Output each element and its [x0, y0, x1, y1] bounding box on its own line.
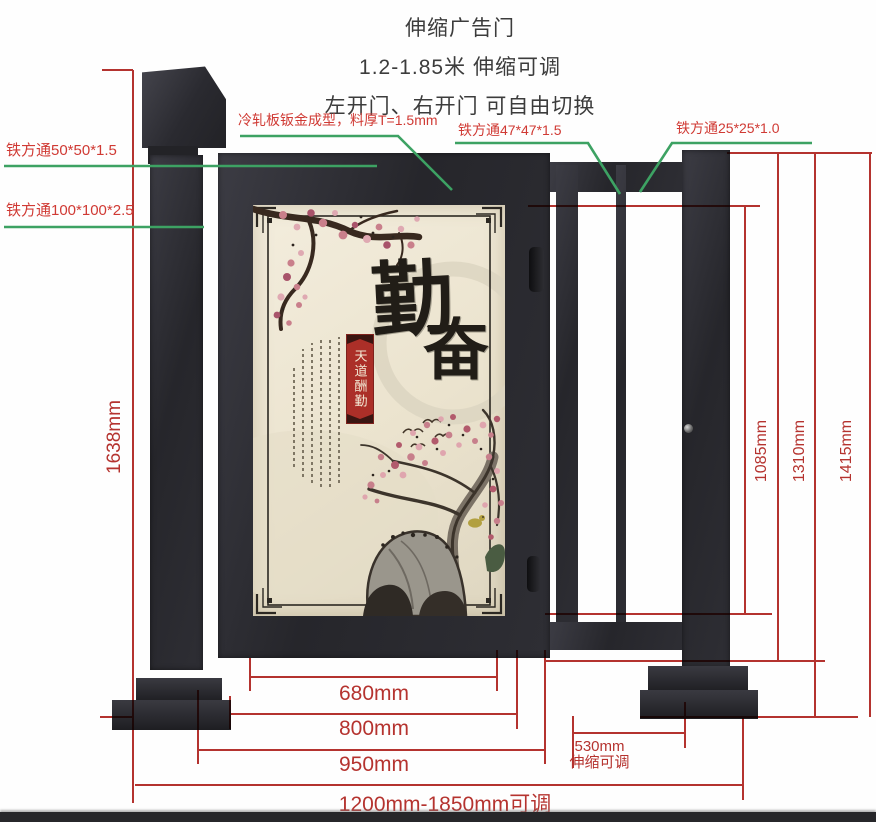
callout-sheet-metal: 冷轧板钣金成型，料厚T=1.5mm — [238, 110, 438, 130]
retract-bottom-rail — [550, 622, 686, 650]
dim-label-530: 530mm 伸缩可调 — [552, 739, 647, 771]
right-post-base-step — [648, 666, 748, 692]
left-post — [150, 155, 203, 670]
dim-label-950: 950mm — [304, 753, 444, 777]
dim-label-1310: 1310mm — [791, 416, 809, 486]
door-lock-knob-lower — [527, 556, 540, 592]
motor-housing-box — [142, 64, 226, 148]
calligraphy-char-fen: 奋 — [423, 317, 489, 383]
dim-label-1415: 1415mm — [838, 416, 856, 486]
callout-tube-100: 铁方通100*100*2.5 — [6, 199, 134, 220]
title-line-2: 1.2-1.85米 伸缩可调 — [280, 51, 640, 81]
callout-tube-47: 铁方通47*47*1.5 — [458, 120, 562, 140]
dim-line-950 — [198, 650, 545, 764]
gate-product-diagram: 伸缩广告门 1.2-1.85米 伸缩可调 左开门、右开门 可自由切换 — [0, 0, 876, 822]
callout-tube-50: 铁方通50*50*1.5 — [6, 139, 117, 160]
ad-panel: 勤 奋 天道酬勤 — [253, 205, 505, 616]
banner-cap-bottom — [347, 414, 373, 423]
dim-label-530-value: 530mm — [552, 739, 647, 755]
left-post-base-plinth — [112, 700, 231, 730]
dim-label-680: 680mm — [304, 682, 444, 706]
dim-label-1085: 1085mm — [753, 416, 771, 486]
yellow-bird — [468, 515, 485, 528]
right-post — [682, 150, 730, 668]
callout-tube-25: 铁方通25*25*1.0 — [676, 118, 780, 138]
banner-cap-top — [347, 335, 373, 344]
poem-text-columns — [293, 337, 345, 489]
title-line-1: 伸缩广告门 — [280, 12, 640, 42]
dim-label-530-note: 伸缩可调 — [552, 755, 647, 771]
green-foliage — [485, 544, 505, 572]
door-lock-knob-upper — [529, 247, 544, 292]
dim-label-1638: 1638mm — [104, 404, 126, 474]
post-bolt — [684, 424, 693, 433]
photo-bottom-strip — [0, 812, 876, 822]
right-post-base-plinth — [640, 690, 758, 719]
retract-bar-47 — [556, 165, 578, 648]
dim-label-800: 800mm — [304, 717, 444, 741]
red-seal-banner: 天道酬勤 — [347, 335, 373, 423]
retract-bar-25 — [616, 165, 626, 648]
banner-text: 天道酬勤 — [347, 344, 373, 414]
left-post-base-step — [136, 678, 222, 702]
